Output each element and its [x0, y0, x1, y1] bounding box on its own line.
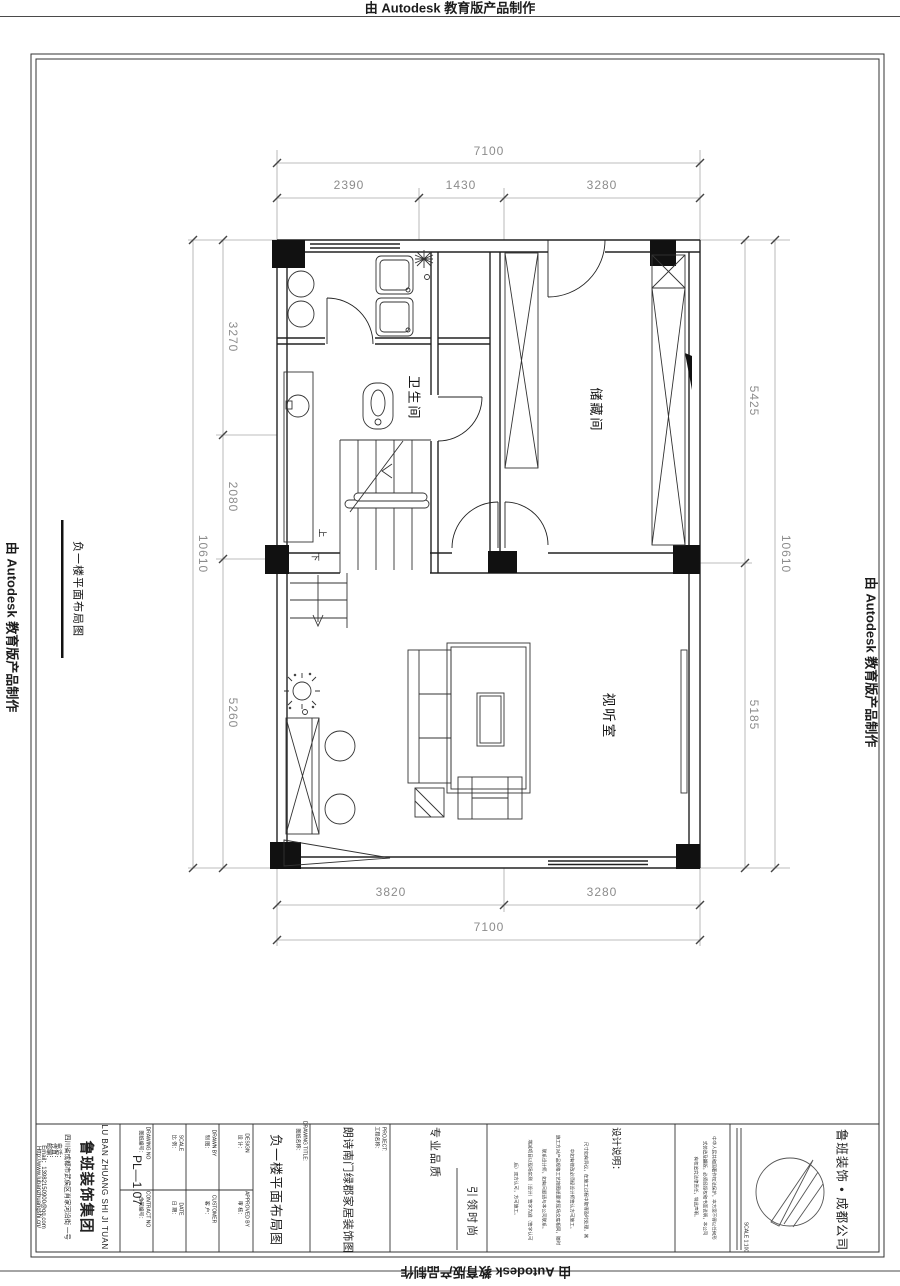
dim-bottom-total: 7100: [474, 921, 505, 933]
field-date-cn: 日 期：: [171, 1201, 176, 1217]
stamp-left: 由 Autodesk 教育版产品制作: [6, 542, 19, 712]
plan-side-label: 负一楼平面布局图: [72, 541, 83, 637]
field-customer-cn: 客 户：: [204, 1201, 209, 1217]
field-drawn-en: DRAWN BY: [211, 1130, 216, 1157]
side-label-rule: [61, 520, 64, 658]
dim-bottom-seg2: 3280: [587, 886, 618, 898]
slogan-quality: 专业品质: [429, 1127, 440, 1179]
field-drawing-no-cn: 图纸编号：: [138, 1130, 143, 1155]
scale-note: SCALE 1:100: [743, 1222, 748, 1252]
floorplan-svg: [0, 0, 900, 1286]
stamp-lines: [0, 17, 900, 1272]
drawing-sheet: 由 Autodesk 教育版产品制作 由 Autodesk 教育版产品制作 由 …: [0, 0, 900, 1286]
field-date-en: DATE: [178, 1203, 183, 1216]
stairs: [290, 440, 431, 628]
project-name: 朗诗南门绿郡家居装饰图: [342, 1127, 353, 1254]
field-contract-en: CONTRACT NO: [145, 1191, 150, 1228]
stairs-down-label: 下: [311, 553, 320, 562]
room-label-bathroom: 卫生间: [408, 375, 421, 420]
dim-top-total: 7100: [474, 145, 505, 157]
dim-top-seg2: 1430: [446, 179, 477, 191]
project-label-en: PROJECT:: [381, 1127, 386, 1151]
copyright-line: 有权追究法律责任，特此声明。: [693, 1157, 698, 1220]
field-approved-en: APPROVED BY: [244, 1191, 249, 1227]
titleblock-lines: [36, 1124, 879, 1252]
field-drawing-no-en: DRAWING NO: [145, 1127, 150, 1160]
field-design-cn: 设 计：: [237, 1135, 242, 1151]
design-note-line: 后）双方认可，方可施工。: [513, 1162, 518, 1217]
design-note-line: 增减项目以现场实测（设计）签字为准（签字认可: [527, 1139, 532, 1240]
company-logo: [756, 1158, 824, 1227]
dim-top-seg1: 2390: [334, 179, 365, 191]
dim-left-seg3: 5260: [227, 698, 239, 729]
company-name-en: LU BAN ZHUANG SHI JI TUAN: [100, 1124, 108, 1249]
design-note-line: 联系设计师，如有问题请与本公司联系。: [541, 1149, 546, 1232]
sheet-border: [31, 54, 884, 1257]
stamp-right: 由 Autodesk 教育版产品制作: [865, 577, 878, 747]
design-notes-title: 设计说明：: [610, 1127, 620, 1175]
copyright-line: 中华人民共和国著作权法保护，本方案不得以任何形: [711, 1136, 716, 1240]
drawing-title: 负一楼平面布局图: [270, 1134, 283, 1246]
field-customer-en: CUSTOMER: [211, 1195, 216, 1224]
dim-right-total: 10610: [780, 535, 792, 573]
field-contract-cn: 合同编号：: [138, 1196, 143, 1221]
slogan-fashion: 引领时尚: [466, 1186, 477, 1238]
dim-left-total: 10610: [197, 535, 209, 573]
field-approved-cn: 审 核：: [237, 1201, 242, 1217]
design-note-line: 施工方对产品规格工艺按图纸要求现场交底相同，随时: [555, 1135, 560, 1245]
room-label-av: 视听室: [601, 693, 615, 740]
brand-name: 鲁班装饰 • 成都公司: [835, 1129, 848, 1251]
design-note-line: 中如有修改必须经设计师签认方可施工。: [569, 1149, 574, 1232]
field-scale-cn: 比 例：: [171, 1135, 176, 1151]
drawing-title-label-cn: 图纸名称：: [295, 1128, 300, 1153]
design-note-line: 尺寸如有异议，在施工过程中取得及时处理，其: [583, 1142, 588, 1238]
field-scale-en: SCALE: [178, 1135, 183, 1151]
dim-left-seg2: 2080: [227, 482, 239, 513]
room-label-storage: 储藏间: [590, 387, 603, 432]
stairs-up-label: 上: [318, 529, 327, 538]
dim-right-seg1: 5425: [748, 386, 760, 417]
dim-right-seg2: 5185: [748, 700, 760, 731]
company-address: 四川省成都市武侯区肖家河沿街 一号: [63, 1134, 70, 1240]
company-website: Http://www.lubanzhuangshi.cn/: [35, 1146, 41, 1228]
av-furniture: [284, 643, 687, 866]
dim-top-seg3: 3280: [587, 179, 618, 191]
dim-bottom-seg1: 3820: [376, 886, 407, 898]
dim-left-seg1: 3270: [227, 322, 239, 353]
field-design-en: DESIGN: [244, 1133, 249, 1152]
columns: [265, 240, 700, 869]
company-name-cn: 鲁班装饰集团: [78, 1141, 93, 1234]
project-label-cn: 工程名称：: [374, 1126, 379, 1151]
drawing-title-label-en: DRAWING TITLE:: [302, 1121, 307, 1161]
copyright-line: 式仿造及翻版，必须经授权和书面说明，本公司: [702, 1141, 707, 1236]
stamp-top: 由 Autodesk 教育版产品制作: [365, 2, 535, 15]
field-drawn-cn: 制 图：: [204, 1135, 209, 1151]
stamp-bottom: 由 Autodesk 教育版产品制作: [401, 1266, 571, 1279]
